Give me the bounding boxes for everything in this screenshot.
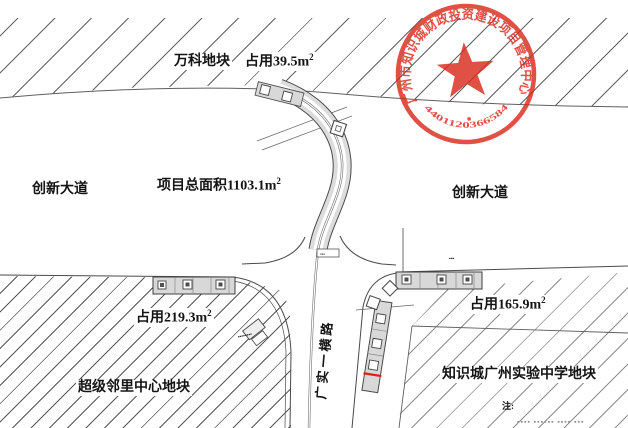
east-avenue-label: 创新大道 [450,186,510,202]
seal-star-icon [435,40,496,98]
chainage-label-text: ▪▪▪ [320,252,325,257]
parcel-southwest-label: 超级邻里中心地块 [76,380,192,396]
station-tiny-label: ▪▪▪ [447,257,456,263]
west-avenue-label: 创新大道 [30,182,90,198]
parcel-north-occupied-area: 占用39.5m2 [243,52,316,71]
site-plan: ▪▪▪ 广州市知识城财政投资建设项目管理中心 4401120366584 万科地… [0,0,628,428]
note-label: 注: [500,401,516,411]
top-edge-clipped-text: ▪▪ [66,0,74,3]
south-occupied-strip [361,300,393,393]
official-seal: 广州市知识城财政投资建设项目管理中心 4401120366584 [392,1,540,147]
project-total-area-label: 项目总面积1103.1m2 [155,176,283,195]
chainage-label-box: ▪▪▪ [317,249,339,257]
east-occupied-segment [382,272,482,296]
parcel-southeast-label: 知识城广州实验中学地块 [440,367,598,383]
parcel-southwest-occupied-area: 占用219.3m2 [134,308,214,327]
parcel-southeast-occupied-area: 占用165.9m2 [468,295,548,314]
note-cutoff-text: ▪▪▪▪ ▪▪▪▪▪▪ ▪▪▪▪ ▪▪▪ [515,418,586,426]
manhole-box-icon [382,281,398,297]
parcel-north-label: 万科地块 [172,54,232,70]
west-occupied-segment [153,277,235,294]
